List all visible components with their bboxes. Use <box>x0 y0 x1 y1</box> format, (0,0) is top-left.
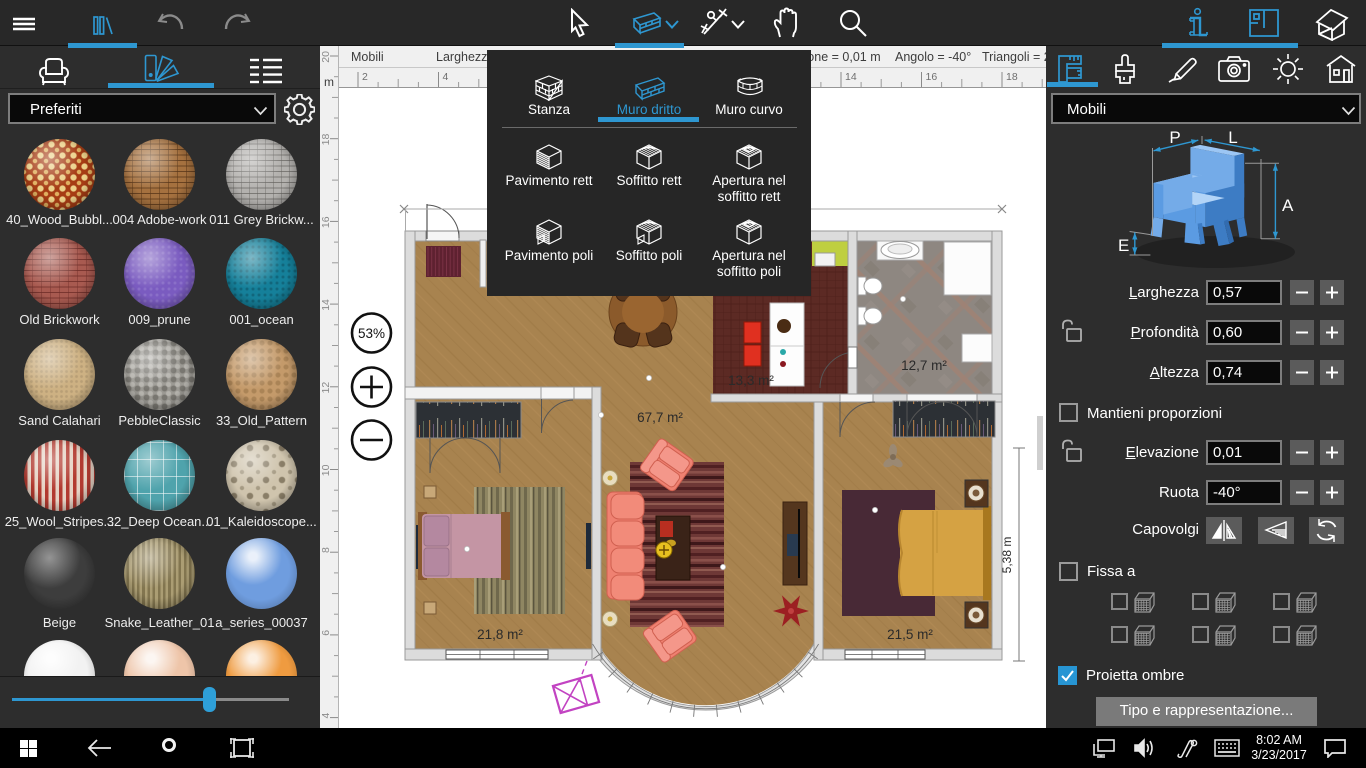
svg-text:16: 16 <box>320 216 332 228</box>
svg-text:20: 20 <box>320 51 332 63</box>
svg-text:m: m <box>324 75 334 89</box>
svg-text:E: E <box>1118 236 1129 255</box>
svg-text:13,3 m²: 13,3 m² <box>728 373 774 388</box>
svg-text:P: P <box>1169 128 1180 147</box>
svg-text:67,7 m²: 67,7 m² <box>637 410 683 425</box>
svg-text:4: 4 <box>443 71 449 83</box>
svg-text:A: A <box>1282 196 1294 215</box>
svg-text:12,7 m²: 12,7 m² <box>901 358 947 373</box>
svg-text:12: 12 <box>320 382 332 394</box>
svg-text:18: 18 <box>1006 71 1018 83</box>
svg-text:21,5 m²: 21,5 m² <box>887 627 933 642</box>
svg-text:18: 18 <box>320 134 332 146</box>
svg-text:53%: 53% <box>358 326 385 341</box>
svg-text:14: 14 <box>845 71 857 83</box>
svg-text:10: 10 <box>320 464 332 476</box>
svg-text:21,8 m²: 21,8 m² <box>477 627 523 642</box>
svg-text:5,38 m: 5,38 m <box>1000 537 1014 574</box>
svg-text:14: 14 <box>320 299 332 311</box>
svg-text:L: L <box>1228 128 1237 147</box>
svg-text:2: 2 <box>362 71 368 83</box>
svg-text:16: 16 <box>926 71 938 83</box>
